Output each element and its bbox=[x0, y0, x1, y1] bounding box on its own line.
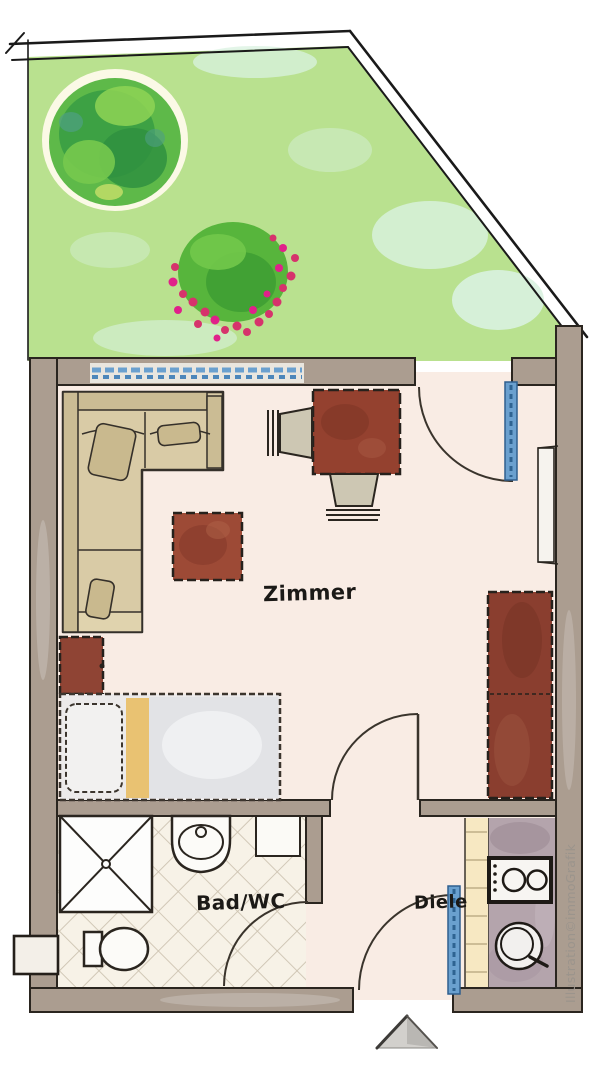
shower-icon bbox=[60, 816, 152, 912]
wall-middle-right-segment bbox=[420, 800, 556, 816]
wall-left bbox=[30, 358, 57, 1012]
floor-plan-illustration: Zimmer Bad/WC Diele Illustration©immoGra… bbox=[0, 0, 609, 1080]
bed-icon bbox=[60, 694, 280, 800]
wardrobe-icon bbox=[488, 592, 552, 798]
bathroom-cabinet-icon bbox=[256, 816, 300, 856]
garden-area bbox=[6, 31, 587, 361]
window-icon bbox=[90, 363, 304, 383]
entrance-arrow-icon bbox=[377, 1016, 437, 1048]
washbasin-icon bbox=[172, 816, 230, 872]
side-table-icon bbox=[60, 637, 105, 694]
watermark-credit: Illustration©immoGrafik bbox=[563, 811, 579, 1003]
floor-plan-svg bbox=[0, 0, 609, 1080]
cooktop-icon bbox=[489, 858, 551, 902]
room-label-diele: Diele bbox=[414, 891, 468, 913]
wall-bath-divider bbox=[306, 816, 322, 903]
kitchen-shelf-icon bbox=[465, 818, 488, 990]
wall-middle-left-segment bbox=[57, 800, 330, 816]
room-label-bad: Bad/WC bbox=[196, 889, 286, 915]
room-label-zimmer: Zimmer bbox=[263, 580, 357, 606]
coffee-table-icon bbox=[173, 513, 242, 580]
chimney-icon bbox=[14, 936, 58, 974]
tree-icon bbox=[42, 69, 188, 211]
dining-table-icon bbox=[313, 390, 400, 474]
toilet-icon bbox=[84, 928, 148, 970]
